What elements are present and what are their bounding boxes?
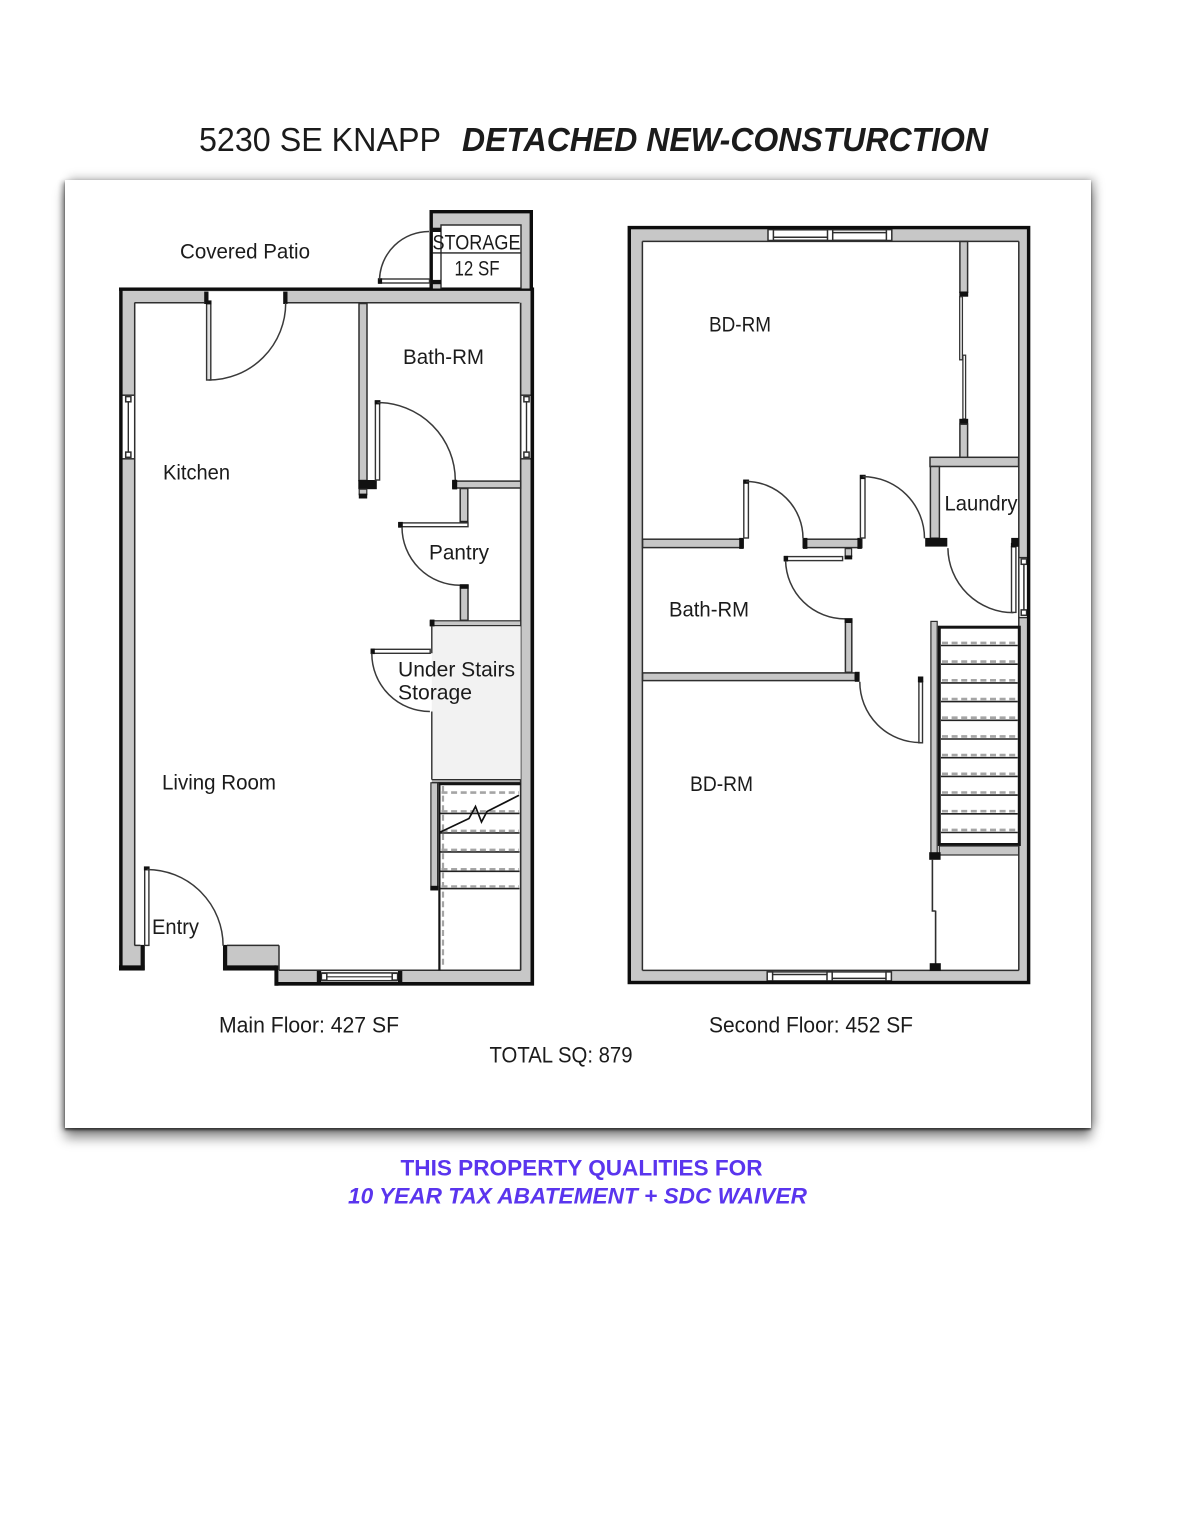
- svg-text:Pantry: Pantry: [429, 542, 489, 565]
- svg-text:5230 SE KNAPPDETACHED NEW-CONS: 5230 SE KNAPPDETACHED NEW-CONSTURCTION: [199, 121, 989, 158]
- svg-text:12 SF: 12 SF: [455, 258, 500, 281]
- svg-text:BD-RM: BD-RM: [690, 773, 753, 796]
- svg-text:Under Stairs: Under Stairs: [398, 659, 515, 682]
- svg-text:STORAGE: STORAGE: [433, 232, 521, 255]
- svg-text:Storage: Storage: [398, 682, 472, 705]
- svg-text:BD-RM: BD-RM: [709, 314, 771, 337]
- svg-text:Bath-RM: Bath-RM: [403, 346, 484, 369]
- svg-text:Covered Patio: Covered Patio: [180, 241, 310, 264]
- svg-text:10 YEAR TAX ABATEMENT + SDC WA: 10 YEAR TAX ABATEMENT + SDC WAIVER: [348, 1184, 807, 1209]
- svg-text:Living Room: Living Room: [162, 772, 276, 795]
- svg-text:Second Floor: 452 SF: Second Floor: 452 SF: [709, 1013, 913, 1038]
- svg-text:THIS PROPERTY QUALITIES FOR: THIS PROPERTY QUALITIES FOR: [401, 1156, 763, 1181]
- svg-text:Laundry: Laundry: [945, 493, 1018, 516]
- svg-text:Kitchen: Kitchen: [163, 462, 230, 485]
- svg-text:Bath-RM: Bath-RM: [669, 599, 749, 622]
- svg-text:TOTAL SQ: 879: TOTAL SQ: 879: [490, 1043, 633, 1068]
- svg-text:Entry: Entry: [152, 916, 199, 939]
- svg-text:Main Floor: 427 SF: Main Floor: 427 SF: [219, 1013, 399, 1038]
